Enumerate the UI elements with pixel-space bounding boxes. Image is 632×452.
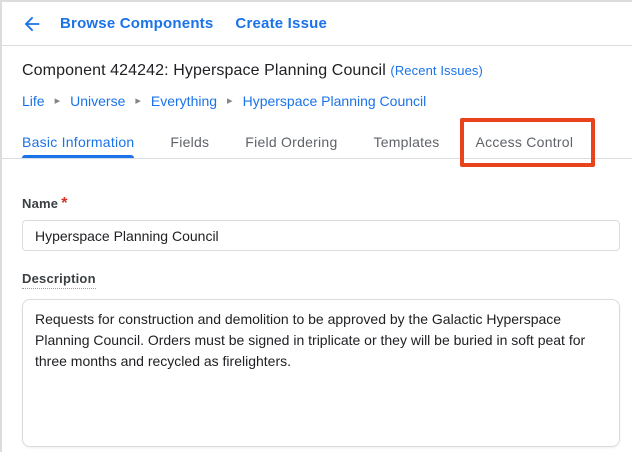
- tab-bar: Basic Information Fields Field Ordering …: [2, 125, 632, 159]
- breadcrumb-separator-icon: ▸: [227, 94, 233, 107]
- breadcrumb-item-life[interactable]: Life: [22, 93, 45, 109]
- main-content: Component 424242: Hyperspace Planning Co…: [2, 62, 632, 109]
- component-title-text: Component 424242: Hyperspace Planning Co…: [22, 62, 386, 79]
- breadcrumb-item-hyperspace-planning-council[interactable]: Hyperspace Planning Council: [243, 93, 427, 109]
- tab-basic-information[interactable]: Basic Information: [22, 125, 134, 158]
- breadcrumb-separator-icon: ▸: [135, 94, 141, 107]
- back-button[interactable]: [20, 12, 44, 36]
- tab-fields[interactable]: Fields: [170, 125, 209, 158]
- recent-issues-link[interactable]: (Recent Issues): [390, 63, 483, 78]
- name-label: Name: [22, 196, 58, 211]
- create-issue-link[interactable]: Create Issue: [235, 15, 327, 32]
- description-label: Description: [22, 271, 96, 289]
- description-label-row: Description: [22, 270, 620, 289]
- tab-access-control-label: Access Control: [476, 134, 574, 150]
- tab-access-control[interactable]: Access Control: [476, 125, 574, 158]
- page-title: Component 424242: Hyperspace Planning Co…: [22, 62, 620, 80]
- breadcrumb-item-everything[interactable]: Everything: [151, 93, 217, 109]
- breadcrumb-item-universe[interactable]: Universe: [70, 93, 125, 109]
- name-input[interactable]: [22, 220, 620, 251]
- basic-information-form: Name* Description Requests for construct…: [2, 195, 632, 447]
- arrow-back-icon: [21, 13, 43, 35]
- browse-components-link[interactable]: Browse Components: [60, 15, 213, 32]
- tab-field-ordering[interactable]: Field Ordering: [245, 125, 337, 158]
- description-textarea[interactable]: Requests for construction and demolition…: [22, 299, 620, 447]
- tab-templates[interactable]: Templates: [373, 125, 439, 158]
- name-label-row: Name*: [22, 195, 620, 213]
- required-asterisk: *: [61, 195, 67, 212]
- breadcrumb-separator-icon: ▸: [55, 94, 61, 107]
- topbar: Browse Components Create Issue: [2, 2, 632, 46]
- breadcrumb: Life ▸ Universe ▸ Everything ▸ Hyperspac…: [22, 93, 620, 109]
